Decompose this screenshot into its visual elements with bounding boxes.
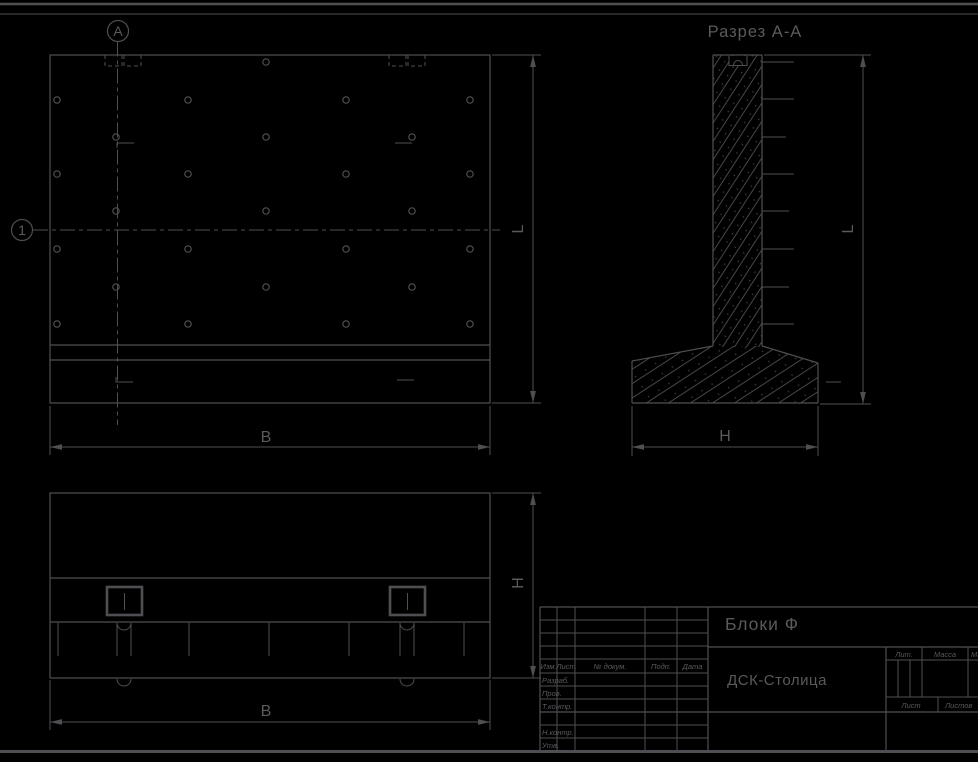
sheet-label: Лист [900,701,920,710]
front-dim-b: B [50,406,490,455]
section-title: Разрез А-А [708,23,803,41]
prop-masshtab: Масштаб [971,650,978,659]
row-razrab: Разраб. [542,676,569,685]
front-dim-l: L [492,55,541,403]
section-marker-a-label: А [113,23,123,39]
sheet-frame [0,4,978,752]
front-dim-l-label: L [510,224,527,233]
col-ndokum: № докум. [593,662,626,671]
row-prov: Пров. [542,689,562,698]
doc-title: Блоки Ф [725,614,799,634]
col-izm: Изм. [541,662,557,671]
front-dim-b-label: B [261,429,272,446]
axis-marker-1: 1 [12,220,501,241]
section-dim-h: Н [632,406,818,456]
plan-dim-b-label: B [261,703,272,720]
lifting-loops [117,623,414,686]
recess-square-right [390,587,425,615]
row-tkontr: Т.контр. [542,702,572,711]
stem-top-recess [729,56,747,66]
axis-marker-1-label: 1 [18,222,26,238]
reference-ticks [116,143,414,382]
section-marker-a: А [108,21,129,426]
stem-loop-marks [763,62,842,382]
row-utv: Утв. [541,741,559,750]
section-dim-l-label: L [840,224,857,233]
cad-canvas: А 1 B L Разрез А-А [0,0,978,762]
plan-view: Н B [50,493,541,730]
loop-dots [54,59,473,327]
top-recess-left [105,55,141,66]
title-block: Изм. Лист № докум. Подп. Дата Разраб. Пр… [540,607,978,752]
plan-dim-h: Н [492,493,541,678]
recess-square-left [107,587,142,615]
top-recess-right [389,55,425,66]
plan-dim-h-label: Н [510,577,527,589]
col-list: Лист [555,662,575,671]
row-nkontr: Н.контр. [542,728,574,737]
col-data: Дата [682,662,703,671]
company-name: ДСК-Столица [727,672,827,689]
plan-dim-b: B [50,680,490,730]
section-dim-h-label: Н [719,428,731,445]
section-view: Разрез А-А [632,23,871,456]
prop-lit: Лит. [894,650,913,659]
front-view: А 1 B L [12,21,542,456]
drawing-sheet: А 1 B L Разрез А-А [0,0,978,762]
col-podp: Подп. [651,662,671,671]
stem-hatch [713,55,762,347]
prop-massa: Масса [934,650,956,659]
sheets-label: Листов [944,701,972,710]
